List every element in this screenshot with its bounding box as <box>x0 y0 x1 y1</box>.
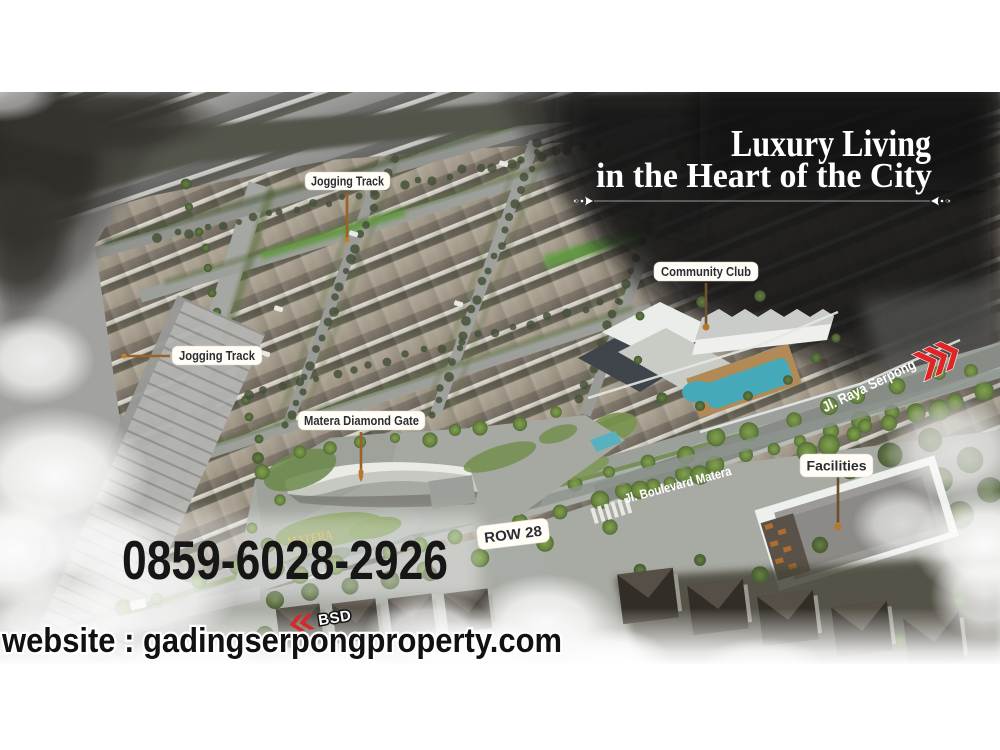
svg-text:Jogging Track: Jogging Track <box>179 348 256 363</box>
svg-text:0859-6028-2926: 0859-6028-2926 <box>122 529 448 591</box>
svg-text:Jogging Track: Jogging Track <box>311 175 384 189</box>
svg-text:Matera Diamond Gate: Matera Diamond Gate <box>304 414 419 428</box>
svg-text:Community Club: Community Club <box>661 264 751 279</box>
svg-text:website : gadingserpongpropert: website : gadingserpongproperty.com <box>1 622 562 660</box>
svg-text:Facilities: Facilities <box>807 458 867 473</box>
svg-text:in the Heart of the City: in the Heart of the City <box>596 156 932 195</box>
